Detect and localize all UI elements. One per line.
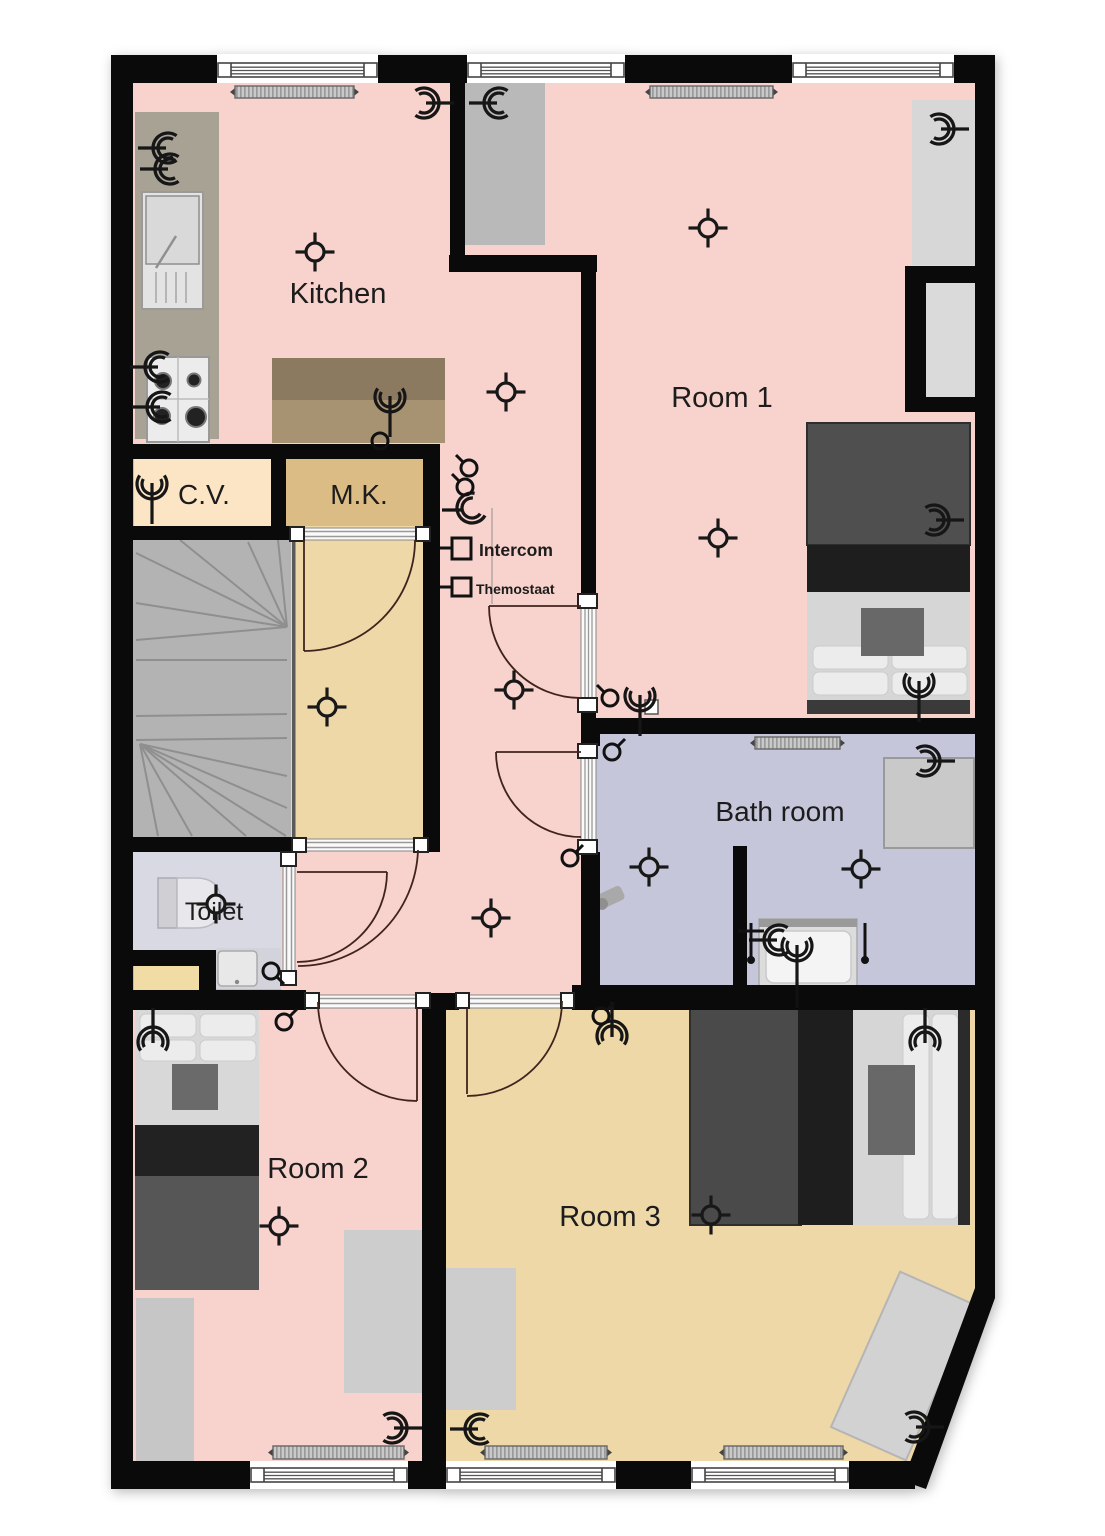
svg-text:Room 3: Room 3	[559, 1201, 661, 1233]
svg-text:Kitchen: Kitchen	[290, 278, 387, 310]
svg-text:M.K.: M.K.	[330, 479, 388, 510]
svg-text:Themostaat: Themostaat	[476, 581, 555, 597]
svg-text:Bath room: Bath room	[715, 796, 844, 827]
svg-text:Toilet: Toilet	[185, 898, 243, 926]
svg-text:Room 2: Room 2	[267, 1153, 369, 1185]
svg-text:Intercom: Intercom	[479, 540, 553, 560]
svg-text:C.V.: C.V.	[178, 479, 230, 510]
svg-text:Room 1: Room 1	[671, 382, 773, 414]
